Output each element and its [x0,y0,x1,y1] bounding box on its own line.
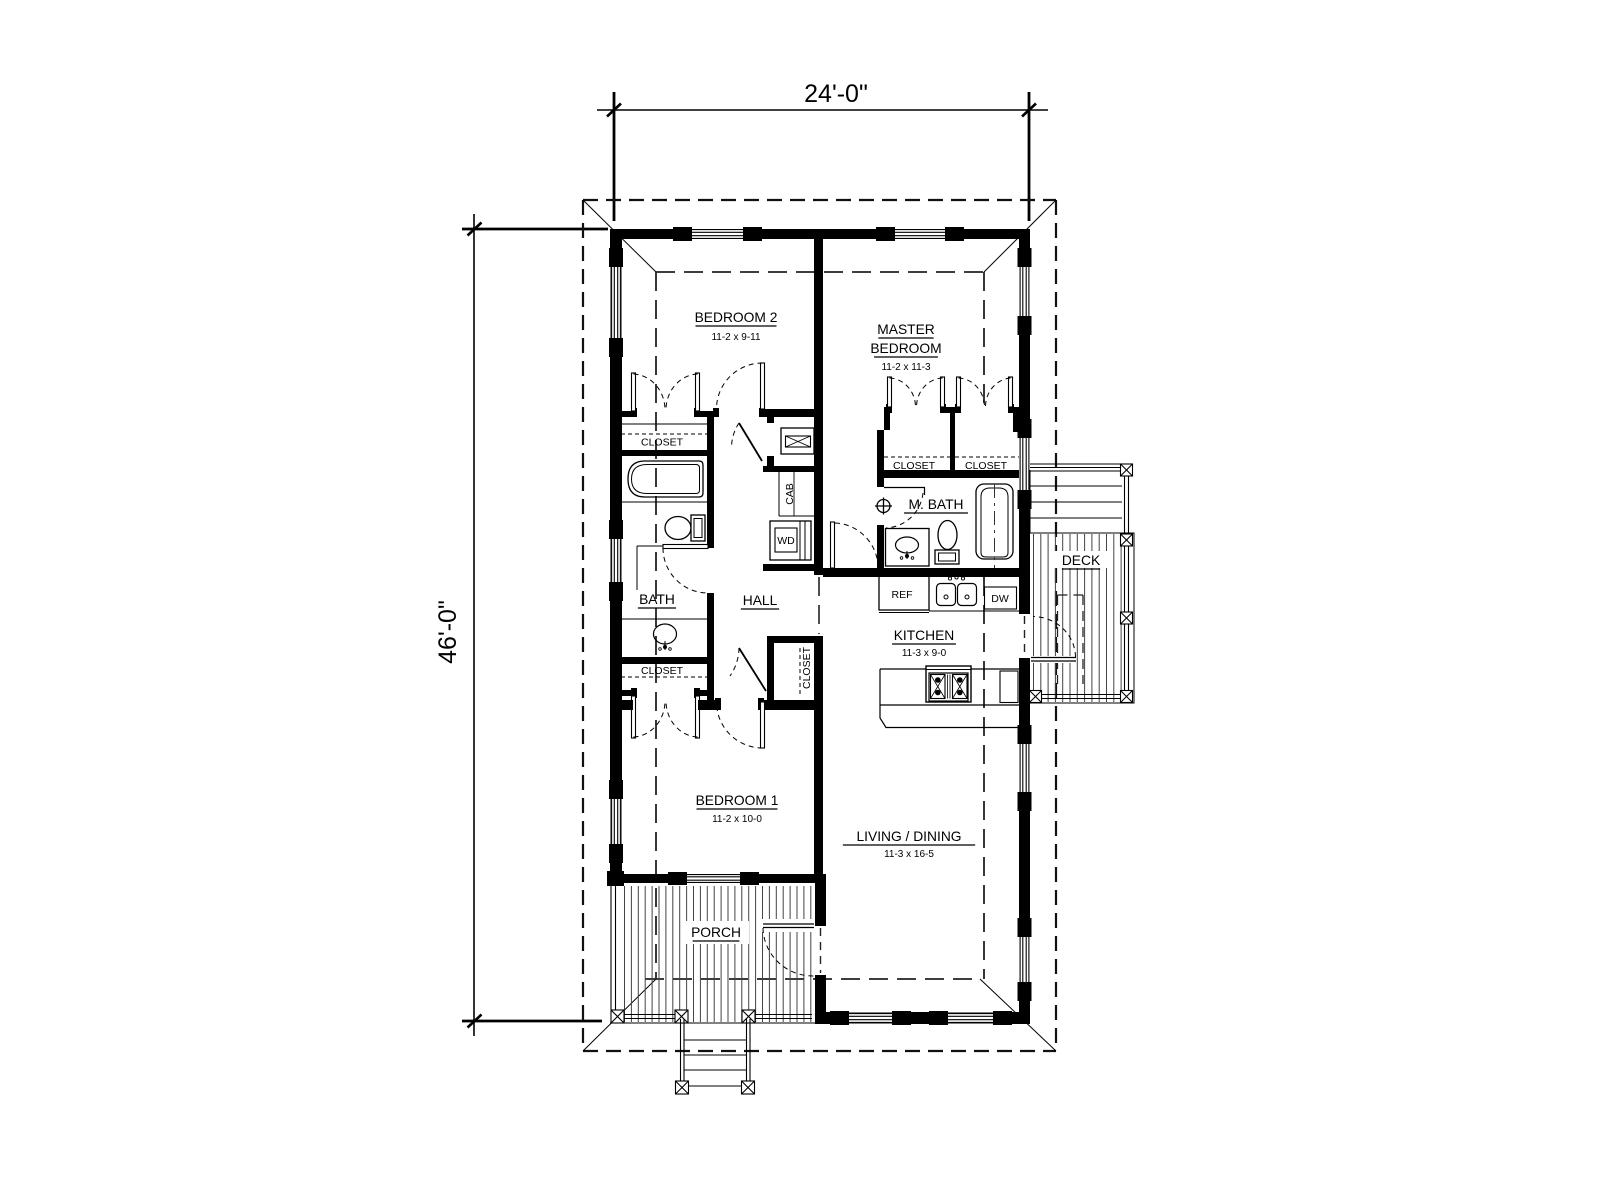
svg-text:CLOSET: CLOSET [965,460,1008,472]
svg-text:11-2 x 10-0: 11-2 x 10-0 [712,814,762,825]
svg-text:11-2 x 9-11: 11-2 x 9-11 [711,332,761,343]
svg-text:11-2 x 11-3: 11-2 x 11-3 [881,362,931,373]
svg-text:M. BATH: M. BATH [909,497,964,512]
svg-text:DECK: DECK [1062,553,1101,568]
svg-text:BEDROOM: BEDROOM [870,341,941,356]
svg-text:CAB: CAB [784,483,796,505]
svg-text:CLOSET: CLOSET [641,437,684,449]
svg-text:BATH: BATH [639,592,675,607]
svg-text:MASTER: MASTER [877,322,935,337]
svg-text:11-3 x 16-5: 11-3 x 16-5 [884,849,934,860]
svg-text:PORCH: PORCH [691,925,741,940]
svg-text:46'-0": 46'-0" [434,600,462,664]
svg-text:BEDROOM 2: BEDROOM 2 [695,310,778,325]
svg-text:HALL: HALL [743,593,778,608]
svg-text:24'-0": 24'-0" [804,80,868,108]
svg-text:11-3 x 9-0: 11-3 x 9-0 [902,648,947,659]
svg-text:BEDROOM 1: BEDROOM 1 [696,793,779,808]
svg-text:REF: REF [892,589,913,601]
svg-text:CLOSET: CLOSET [641,665,684,677]
svg-text:WD: WD [777,535,795,547]
svg-text:CLOSET: CLOSET [801,646,813,689]
svg-text:CLOSET: CLOSET [893,460,936,472]
svg-text:KITCHEN: KITCHEN [894,628,955,643]
svg-text:DW: DW [991,593,1009,605]
svg-text:LIVING / DINING: LIVING / DINING [856,829,961,844]
